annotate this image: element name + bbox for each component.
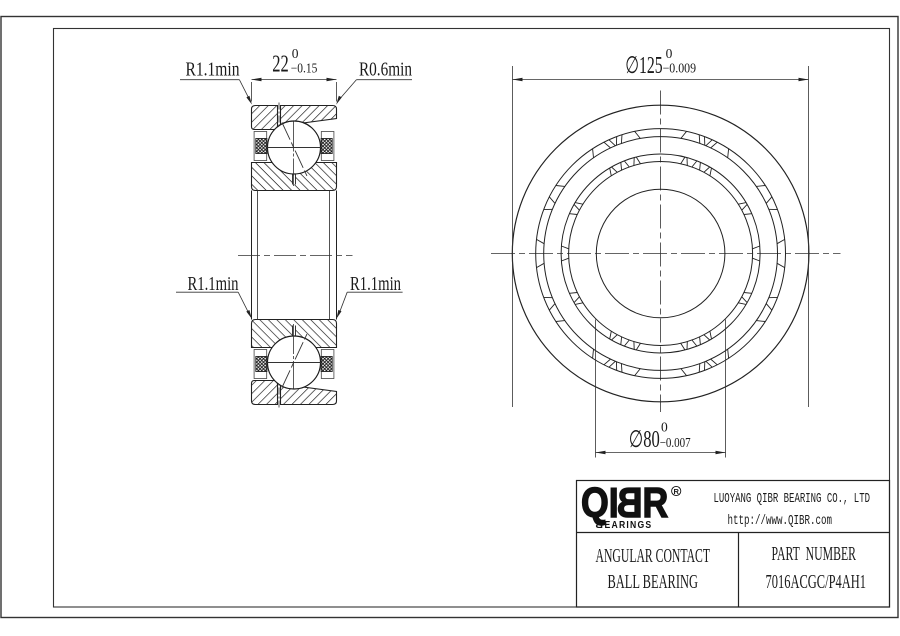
svg-text:PART NUMBER: PART NUMBER	[772, 543, 857, 565]
svg-text:R1.1min: R1.1min	[350, 273, 401, 295]
svg-text:ANGULAR CONTACT: ANGULAR CONTACT	[596, 545, 711, 567]
svg-text:0: 0	[292, 46, 299, 61]
svg-text:−0.009: −0.009	[663, 61, 697, 76]
svg-text:0: 0	[666, 46, 673, 61]
svg-text:−0.15: −0.15	[291, 61, 318, 76]
svg-text:22: 22	[272, 52, 289, 78]
svg-text:7016ACGC/P4AH1: 7016ACGC/P4AH1	[766, 571, 867, 593]
svg-text:0: 0	[661, 420, 668, 435]
svg-text:B: B	[595, 519, 603, 531]
svg-text:−0.007: −0.007	[660, 435, 691, 450]
svg-text:R1.1min: R1.1min	[188, 273, 239, 295]
svg-text:R0.6min: R0.6min	[359, 58, 412, 80]
svg-text:∅80: ∅80	[629, 427, 660, 453]
svg-text:BALL BEARING: BALL BEARING	[608, 571, 699, 593]
svg-text:∅125: ∅125	[625, 53, 663, 79]
svg-text:R1.1min: R1.1min	[186, 58, 240, 80]
svg-text:EARINGS: EARINGS	[605, 519, 653, 531]
svg-text:R: R	[673, 487, 679, 496]
svg-text:LUOYANG QIBR BEARING CO., LTD: LUOYANG QIBR BEARING CO., LTD	[714, 492, 871, 507]
svg-text:http://www.QIBR.com: http://www.QIBR.com	[728, 514, 833, 529]
